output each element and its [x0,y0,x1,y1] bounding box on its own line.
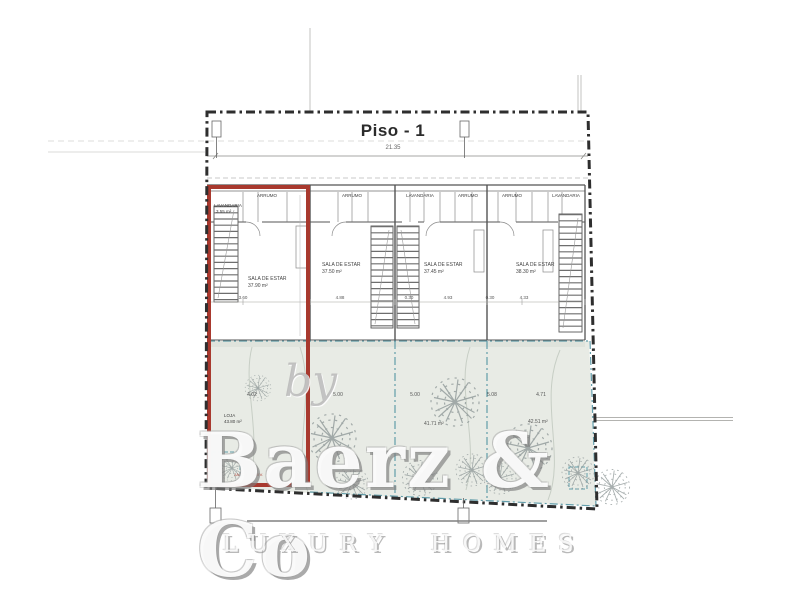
dimension-label: 0.30 [486,295,495,301]
overall-dimension-line [207,153,588,159]
dimension-label: 0.30 [405,295,414,301]
overall-dimension-label: 21.35 [385,145,400,153]
plan-title: Piso - 1 [361,120,425,141]
room-label: LAVANDARIA [214,203,242,209]
watermark-by: by [284,356,337,407]
living-room-label: SALA DE ESTAR 37.45 m² [424,262,463,276]
room-label: SALA DE ESTAR [322,262,361,269]
room-label: ARRUMO [502,193,522,199]
living-room-label: SALA DE ESTAR 38.30 m² [516,262,555,276]
room-label: LAVANDARIA [406,193,434,199]
dimension-label: 5.00 [410,392,420,398]
watermark-brand: Baerz & Co [197,416,599,594]
room-area: 37.45 m² [424,269,463,276]
dimension-label: 5.08 [487,392,497,398]
dimension-label: 4.71 [536,392,546,398]
room-label: SALA DE ESTAR [424,262,463,269]
dimension-label: 4.02 [247,392,257,398]
terrace-strip [207,341,585,347]
living-room-label: SALA DE ESTAR 37.50 m² [322,262,361,276]
room-area: 3.55 m² [216,209,231,215]
room-label: ARRUMO [257,193,277,199]
dimension-label: 3.60 [239,295,248,301]
watermark-tagline: LUXURY HOMES [222,531,585,557]
room-label: SALA DE ESTAR [248,276,287,283]
room-area: 38.30 m² [516,269,555,276]
dimension-label: 4.33 [520,295,529,301]
room-label: ARRUMO [342,193,362,199]
dimension-label: 4.93 [444,295,453,301]
watermark-divider [247,520,547,522]
room-area: 37.90 m² [248,283,287,290]
room-label: SALA DE ESTAR [516,262,555,269]
room-label: LAVANDARIA [552,193,580,199]
living-room-label: SALA DE ESTAR 37.90 m² [248,276,287,290]
room-area: 37.50 m² [322,269,361,276]
room-label: ARRUMO [458,193,478,199]
dimension-label: 4.88 [336,295,345,301]
floor-plan-page: Piso - 1 21.35 LAVANDARIA 3.55 m² ARRUMO… [0,0,800,600]
